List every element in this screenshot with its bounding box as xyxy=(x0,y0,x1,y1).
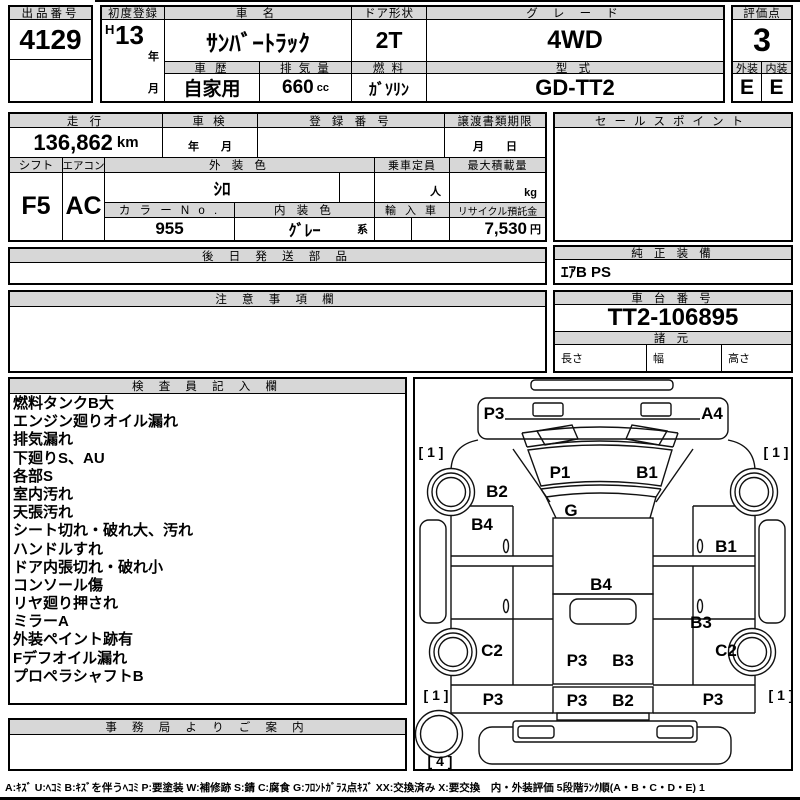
right-fender xyxy=(728,440,755,470)
import-cell-2 xyxy=(412,218,450,240)
capacity-header: 乗車定員 xyxy=(375,158,450,173)
displacement-value: 660 xyxy=(282,77,314,99)
fuel-header: 燃 料 xyxy=(352,62,427,74)
exterior-color-value: ｼﾛ xyxy=(105,173,340,203)
aircon-header: エアコン xyxy=(63,158,105,173)
left-rocker-panel xyxy=(420,520,446,623)
notes-header: 注 意 事 項 欄 xyxy=(10,292,545,307)
notes-body xyxy=(10,307,545,371)
front-vent-right xyxy=(641,403,671,416)
left-panel-handle xyxy=(504,600,509,613)
front-bumper xyxy=(531,380,673,390)
score-header: 評価点 xyxy=(733,7,791,20)
sales-point-header: セールスポイント xyxy=(555,114,791,128)
diagram-damage-label: P3 xyxy=(567,651,588,670)
spec-height-cell: 高さ xyxy=(722,345,791,371)
diagram-damage-label: B2 xyxy=(612,691,634,710)
displacement-header: 排 気 量 xyxy=(260,62,352,74)
chassis-header: 車 台 番 号 xyxy=(555,292,791,305)
import-header: 輸 入 車 xyxy=(375,203,450,218)
max-load-cell: kg xyxy=(450,173,545,203)
office-info-body xyxy=(10,735,405,769)
first-registration-year-suffix: 年 xyxy=(148,48,159,64)
oem-equipment-header: 純 正 装 備 xyxy=(555,247,791,260)
inspector-note-line: 下廻りS、AU xyxy=(10,450,405,468)
inspector-note-line: シート切れ・破れ大、汚れ xyxy=(10,522,405,540)
inspector-note-line: 外装ペイント跡有 xyxy=(10,631,405,649)
first-registration-month-suffix: 月 xyxy=(148,80,159,96)
exterior-grade-header: 外装 xyxy=(733,62,762,74)
model-code-value: GD-TT2 xyxy=(427,74,723,101)
interior-color-cell: ｸﾞﾚｰ 系 xyxy=(235,218,375,240)
registration-number-cell xyxy=(258,128,445,158)
front-right-wheel xyxy=(731,469,778,516)
front-left-wheel xyxy=(428,469,475,516)
right-door-handle xyxy=(698,540,703,553)
shift-value: F5 xyxy=(10,173,63,240)
transfer-deadline-cell: 月 日 xyxy=(445,128,545,158)
specs-header: 諸 元 xyxy=(555,332,791,345)
right-rocker-panel xyxy=(759,520,785,623)
import-cell-1 xyxy=(375,218,412,240)
lot-number-header: 出品番号 xyxy=(10,7,91,20)
color-no-value: 955 xyxy=(105,218,235,240)
bed-floor xyxy=(553,594,653,684)
exterior-color-empty-cell xyxy=(340,173,375,203)
inspector-notes-box: 検 査 員 記 入 欄 燃料タンクB大エンジン廻りオイル漏れ排気漏れ下廻りS、A… xyxy=(8,377,407,705)
first-registration-year: 13 xyxy=(115,20,144,51)
diagram-damage-label: B3 xyxy=(612,651,634,670)
interior-grade-value: E xyxy=(762,74,791,101)
vehicle-diagram-box: P3A4[ 1 ][ 1 ]P1B1B2GB4B1B4B3C2C2P3B3P3P… xyxy=(413,377,793,771)
recycle-deposit-cell: 7,530 円 xyxy=(450,218,545,240)
inspection-cell: 年 月 xyxy=(163,128,258,158)
right-fender-inner-edge xyxy=(656,449,693,502)
aircon-value: AC xyxy=(63,173,105,240)
inspector-note-line: 室内汚れ xyxy=(10,486,405,504)
diagram-damage-label: C2 xyxy=(481,641,503,660)
mileage-header: 走 行 xyxy=(10,114,163,128)
inspector-note-line: エンジン廻りオイル漏れ xyxy=(10,413,405,431)
color-no-header: カ ラ ー N o . xyxy=(105,203,235,218)
inspector-note-line: ミラーA xyxy=(10,613,405,631)
first-registration-cell: H 13 年 月 xyxy=(102,20,165,101)
rear-window xyxy=(570,599,636,624)
model-code-header: 型 式 xyxy=(427,62,723,74)
score-value: 3 xyxy=(733,20,791,62)
transfer-deadline-header: 譲渡書類期限 xyxy=(445,114,545,128)
inspector-note-line: ドア内張切れ・破れ小 xyxy=(10,559,405,577)
later-parts-header: 後 日 発 送 部 品 xyxy=(10,249,545,263)
interior-color-value: ｸﾞﾚｰ xyxy=(288,218,320,240)
grade-value: 4WD xyxy=(427,20,723,62)
inspector-note-line: Fデフオイル漏れ xyxy=(10,650,405,668)
diagram-damage-label: B2 xyxy=(486,482,508,501)
lot-number-empty-cell xyxy=(10,60,91,101)
damage-code-legend: A:ｷｽﾞ U:ﾍｺﾐ B:ｷｽﾞを伴うﾍｺﾐ P:要塗装 W:補修跡 S:錆 … xyxy=(5,780,797,796)
vehicle-diagram: P3A4[ 1 ][ 1 ]P1B1B2GB4B1B4B3C2C2P3B3P3P… xyxy=(415,379,791,769)
diagram-damage-label: B1 xyxy=(715,537,737,556)
chassis-box: 車 台 番 号 TT2-106895 諸 元 長さ 幅 高さ xyxy=(553,290,793,373)
door-shape-value: 2T xyxy=(352,20,427,62)
diagram-damage-label: P3 xyxy=(703,690,724,709)
spec-length-cell: 長さ xyxy=(555,345,647,371)
inspector-notes-header: 検 査 員 記 入 欄 xyxy=(10,379,405,394)
car-name-value: ｻﾝﾊﾞｰﾄﾗｯｸ xyxy=(165,20,352,62)
diagram-damage-label: P3 xyxy=(567,691,588,710)
score-box: 評価点 3 外装 内装 E E xyxy=(731,5,793,103)
grade-header: グ レ ー ド xyxy=(427,7,723,20)
capacity-cell: 人 xyxy=(375,173,450,203)
inspector-note-line: 天張汚れ xyxy=(10,504,405,522)
history-value: 自家用 xyxy=(165,74,260,101)
recycle-deposit-value: 7,530 xyxy=(484,219,527,239)
mileage-cell: 136,862 km xyxy=(10,128,163,158)
first-registration-era: H xyxy=(105,22,114,37)
diagram-damage-label: G xyxy=(564,501,577,520)
inspector-note-line: コンソール傷 xyxy=(10,577,405,595)
recycle-deposit-unit: 円 xyxy=(530,221,541,237)
header-grid: 初度登録 H 13 年 月 車 名 ｻﾝﾊﾞｰﾄﾗｯｸ ドア形状 2T グ レ … xyxy=(100,5,725,103)
oem-equipment-box: 純 正 装 備 ｴｱB PS xyxy=(553,245,793,285)
tailgate-lower-bar xyxy=(557,713,649,720)
rear-left-wheel xyxy=(430,629,477,676)
inspector-note-line: 各部S xyxy=(10,468,405,486)
later-parts-box: 後 日 発 送 部 品 xyxy=(8,247,547,285)
recycle-deposit-header: リサイクル預託金 xyxy=(450,203,545,218)
right-panel-handle xyxy=(698,600,703,613)
diagram-damage-label: P3 xyxy=(484,404,505,423)
later-parts-body xyxy=(10,263,545,283)
max-load-header: 最大積載量 xyxy=(450,158,545,173)
diagram-damage-label: P1 xyxy=(550,463,571,482)
auction-sheet: 出品番号 4129 初度登録 H 13 年 月 車 名 ｻﾝﾊﾞｰﾄﾗｯｸ ドア… xyxy=(0,0,800,800)
diagram-damage-label: [ 4 ] xyxy=(428,753,453,769)
office-info-header: 事 務 局 よ り ご 案 内 xyxy=(10,720,405,735)
exterior-color-header: 外 装 色 xyxy=(105,158,375,173)
rear-bumper-bar xyxy=(513,721,697,742)
diagram-damage-label: C2 xyxy=(715,641,737,660)
mileage-equipment-grid: 走 行 車 検 登 録 番 号 譲渡書類期限 136,862 km 年 月 月 … xyxy=(8,112,547,242)
car-name-header: 車 名 xyxy=(165,7,352,20)
interior-color-header: 内 装 色 xyxy=(235,203,375,218)
diagram-damage-label: P3 xyxy=(483,690,504,709)
cowl xyxy=(541,485,661,489)
registration-number-header: 登 録 番 号 xyxy=(258,114,445,128)
inspector-note-line: 排気漏れ xyxy=(10,431,405,449)
interior-color-suffix: 系 xyxy=(357,221,368,237)
lot-number-box: 出品番号 4129 xyxy=(8,5,93,103)
left-door-handle xyxy=(504,540,509,553)
diagram-damage-label: B1 xyxy=(636,463,658,482)
history-header: 車 歴 xyxy=(165,62,260,74)
top-edge-rule xyxy=(95,0,800,2)
inspector-note-line: ハンドルすれ xyxy=(10,541,405,559)
oem-equipment-value: ｴｱB PS xyxy=(555,260,791,283)
diagram-damage-label: B4 xyxy=(590,575,612,594)
left-fender xyxy=(451,440,478,470)
diagram-damage-labels: P3A4[ 1 ][ 1 ]P1B1B2GB4B1B4B3C2C2P3B3P3P… xyxy=(419,404,791,769)
inspector-notes-body: 燃料タンクB大エンジン廻りオイル漏れ排気漏れ下廻りS、AU各部S室内汚れ天張汚れ… xyxy=(10,395,405,702)
inspector-note-line: リヤ廻り押され xyxy=(10,595,405,613)
sales-point-body xyxy=(555,128,791,240)
displacement-cell: 660 cc xyxy=(260,74,352,101)
inspector-note-line: プロペラシャフトB xyxy=(10,668,405,686)
spec-width-cell: 幅 xyxy=(647,345,722,371)
displacement-unit: cc xyxy=(317,82,329,94)
inspection-header: 車 検 xyxy=(163,114,258,128)
fuel-value: ｶﾞｿﾘﾝ xyxy=(352,74,427,101)
mileage-unit: km xyxy=(117,134,139,151)
spare-tire xyxy=(416,711,463,758)
interior-grade-header: 内装 xyxy=(762,62,791,74)
diagram-damage-label: [ 1 ] xyxy=(419,444,444,460)
inspector-note-line: 燃料タンクB大 xyxy=(10,395,405,413)
office-info-box: 事 務 局 よ り ご 案 内 xyxy=(8,718,407,771)
shift-header: シフト xyxy=(10,158,63,173)
notes-box: 注 意 事 項 欄 xyxy=(8,290,547,373)
exterior-grade-value: E xyxy=(733,74,762,101)
diagram-damage-label: [ 1 ] xyxy=(764,444,789,460)
diagram-damage-label: [ 1 ] xyxy=(424,687,449,703)
first-registration-header: 初度登録 xyxy=(102,7,165,20)
diagram-damage-label: B3 xyxy=(690,613,712,632)
door-shape-header: ドア形状 xyxy=(352,7,427,20)
front-vent-left xyxy=(533,403,563,416)
lot-number-value: 4129 xyxy=(10,20,91,60)
sales-point-box: セールスポイント xyxy=(553,112,793,242)
diagram-damage-label: B4 xyxy=(471,515,493,534)
diagram-damage-label: A4 xyxy=(701,404,723,423)
chassis-value: TT2-106895 xyxy=(555,305,791,332)
diagram-damage-label: [ 1 ] xyxy=(769,687,791,703)
mileage-value: 136,862 xyxy=(33,130,113,156)
